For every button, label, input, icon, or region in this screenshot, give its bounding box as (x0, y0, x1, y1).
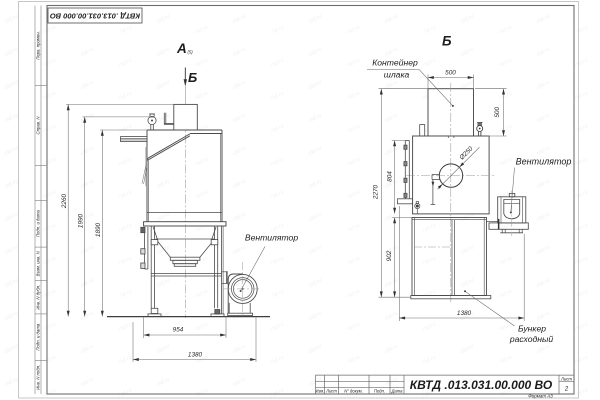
svg-text:2260: 2260 (61, 193, 68, 209)
svg-text:Перв. примен.: Перв. примен. (36, 31, 41, 60)
svg-text:Изм.: Изм. (316, 389, 325, 394)
svg-text:Вентилятор: Вентилятор (245, 233, 298, 243)
svg-text:Б: Б (188, 70, 197, 85)
svg-text:А: А (176, 41, 187, 56)
svg-text:N° докум.: N° докум. (344, 389, 363, 394)
svg-text:Подп. и дата: Подп. и дата (36, 323, 41, 351)
svg-text:Дата: Дата (390, 389, 403, 394)
svg-text:954: 954 (173, 327, 184, 334)
svg-text:1380: 1380 (457, 310, 472, 317)
svg-text:Лист: Лист (560, 376, 572, 381)
svg-text:(5): (5) (188, 50, 194, 55)
svg-text:Справ. N: Справ. N (36, 116, 41, 135)
svg-text:Бункер: Бункер (518, 324, 546, 334)
svg-text:500: 500 (445, 70, 456, 77)
svg-text:шлака: шлака (384, 70, 410, 80)
svg-text:Подп. и дата: Подп. и дата (36, 210, 41, 238)
svg-text:Подп.: Подп. (374, 389, 385, 394)
svg-text:2: 2 (564, 387, 569, 393)
svg-text:Взам. инв. N: Взам. инв. N (36, 250, 41, 276)
svg-text:1380: 1380 (188, 351, 203, 358)
svg-text:902: 902 (386, 250, 393, 261)
svg-text:Инв. N подл.: Инв. N подл. (36, 365, 41, 390)
svg-text:Контейнер: Контейнер (372, 58, 418, 68)
svg-text:КВТД .013.031.00.000 ВО: КВТД .013.031.00.000 ВО (410, 378, 553, 392)
svg-text:1990: 1990 (77, 213, 84, 228)
svg-text:расходный: расходный (509, 334, 553, 344)
svg-text:2270: 2270 (372, 184, 379, 200)
svg-text:1890: 1890 (95, 222, 102, 237)
svg-text:804: 804 (386, 171, 393, 182)
svg-text:Вентилятор: Вентилятор (516, 157, 572, 167)
svg-text:Формат А3: Формат А3 (528, 394, 553, 399)
svg-text:500: 500 (494, 107, 501, 118)
svg-text:КВТД .013.031.00.000 ВО: КВТД .013.031.00.000 ВО (50, 12, 140, 21)
svg-text:Инв. N дубл.: Инв. N дубл. (36, 285, 41, 310)
svg-text:Лист: Лист (325, 389, 337, 394)
svg-text:Б: Б (442, 34, 452, 49)
